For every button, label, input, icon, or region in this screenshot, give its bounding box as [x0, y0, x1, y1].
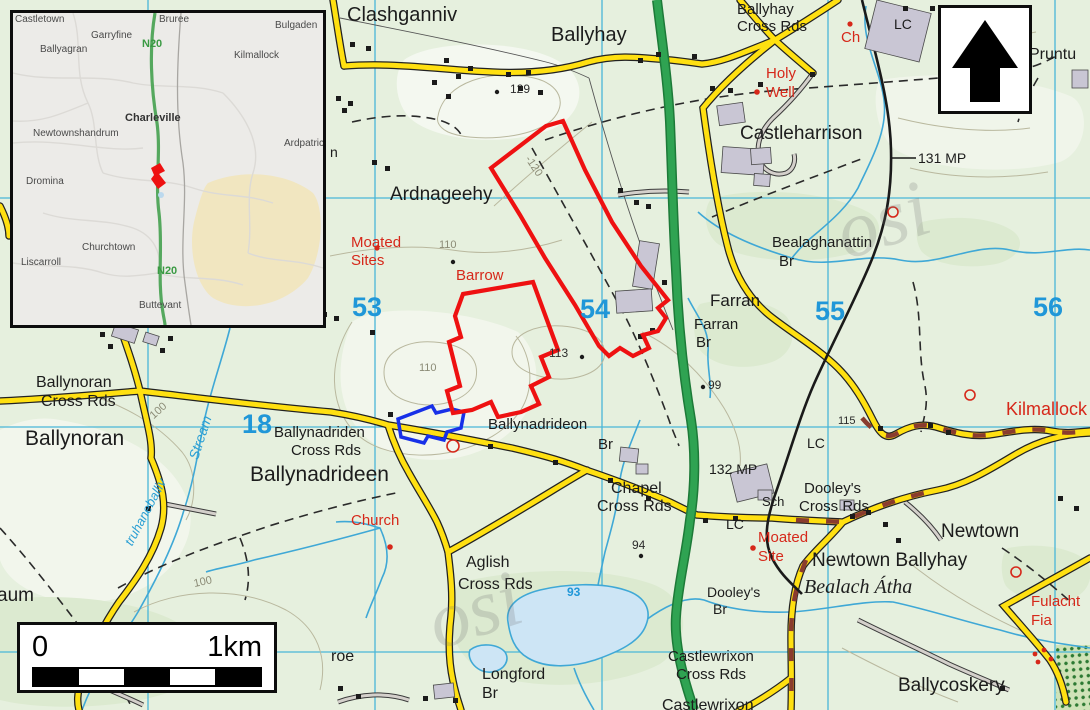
inset-pond [158, 192, 164, 198]
inset-garryfine: Garryfine [91, 31, 132, 41]
map-view: ClashgannivBallyhayBallyhayCross RdsCast… [0, 0, 1090, 710]
north-arrow [938, 5, 1032, 114]
scale-bar-segments [32, 667, 262, 687]
inset-liscarroll: Liscarroll [21, 258, 61, 268]
inset-buttevant: Buttevant [139, 301, 181, 311]
inset-castletown: Castletown [15, 15, 64, 25]
scale-1km-label: 1km [207, 631, 262, 664]
scale-zero-label: 0 [32, 631, 48, 664]
inset-n20-label: N20 [142, 39, 162, 50]
inset-dromina: Dromina [26, 177, 64, 187]
inset-site-marker [151, 163, 166, 189]
inset-locator-map: CastletownGarryfineBrureeBulgadenBallyag… [10, 10, 326, 328]
inset-hills [192, 174, 321, 306]
scale-bar: 0 1km [17, 622, 277, 693]
inset-ardpatrick: Ardpatrick [284, 139, 326, 149]
inset-ballyagran: Ballyagran [40, 45, 87, 55]
inset-charleville: Charleville [125, 113, 181, 124]
north-arrow-icon [941, 8, 1029, 111]
inset-bulgaden: Bulgaden [275, 21, 317, 31]
inset-kilmallock: Kilmallock [234, 51, 279, 61]
inset-n20-label: N20 [157, 266, 177, 277]
inset-newtownshandrum: Newtownshandrum [33, 129, 119, 139]
red-site-boundary-east [491, 121, 668, 356]
inset-churchtown: Churchtown [82, 243, 135, 253]
inset-bruree: Bruree [159, 15, 189, 25]
